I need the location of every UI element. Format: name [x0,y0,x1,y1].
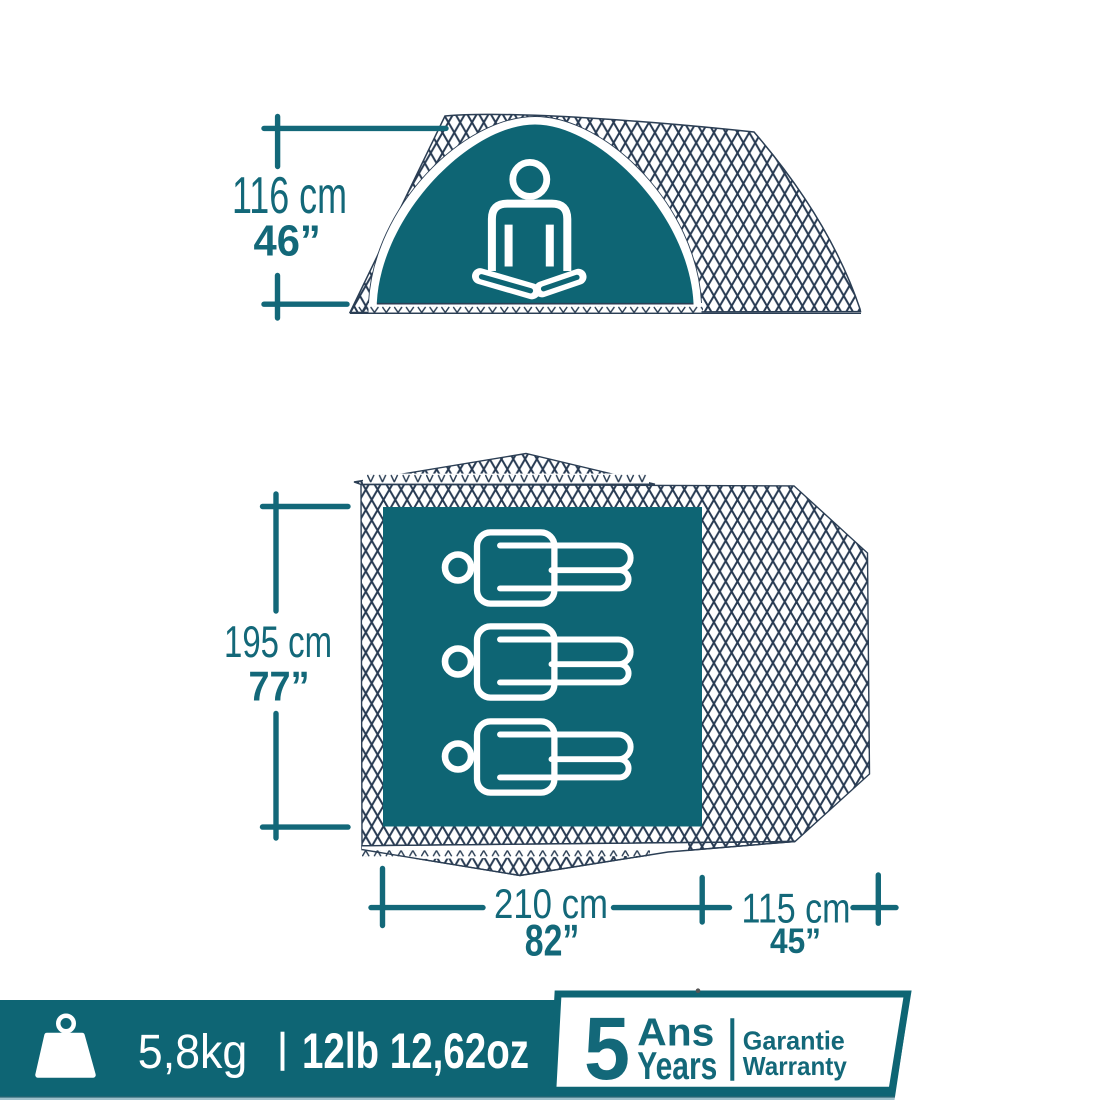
svg-text:82”: 82” [525,916,580,966]
svg-text:46”: 46” [254,217,321,266]
svg-text:77”: 77” [249,663,310,710]
svg-text:12lb 12,62oz: 12lb 12,62oz [302,1023,529,1079]
svg-text:5: 5 [584,998,630,1098]
svg-text:45”: 45” [770,922,821,961]
svg-text:Warranty: Warranty [743,1051,847,1081]
svg-text:Years: Years [637,1045,717,1088]
svg-text:195 cm: 195 cm [224,617,332,667]
svg-text:5,8kg: 5,8kg [138,1025,248,1079]
